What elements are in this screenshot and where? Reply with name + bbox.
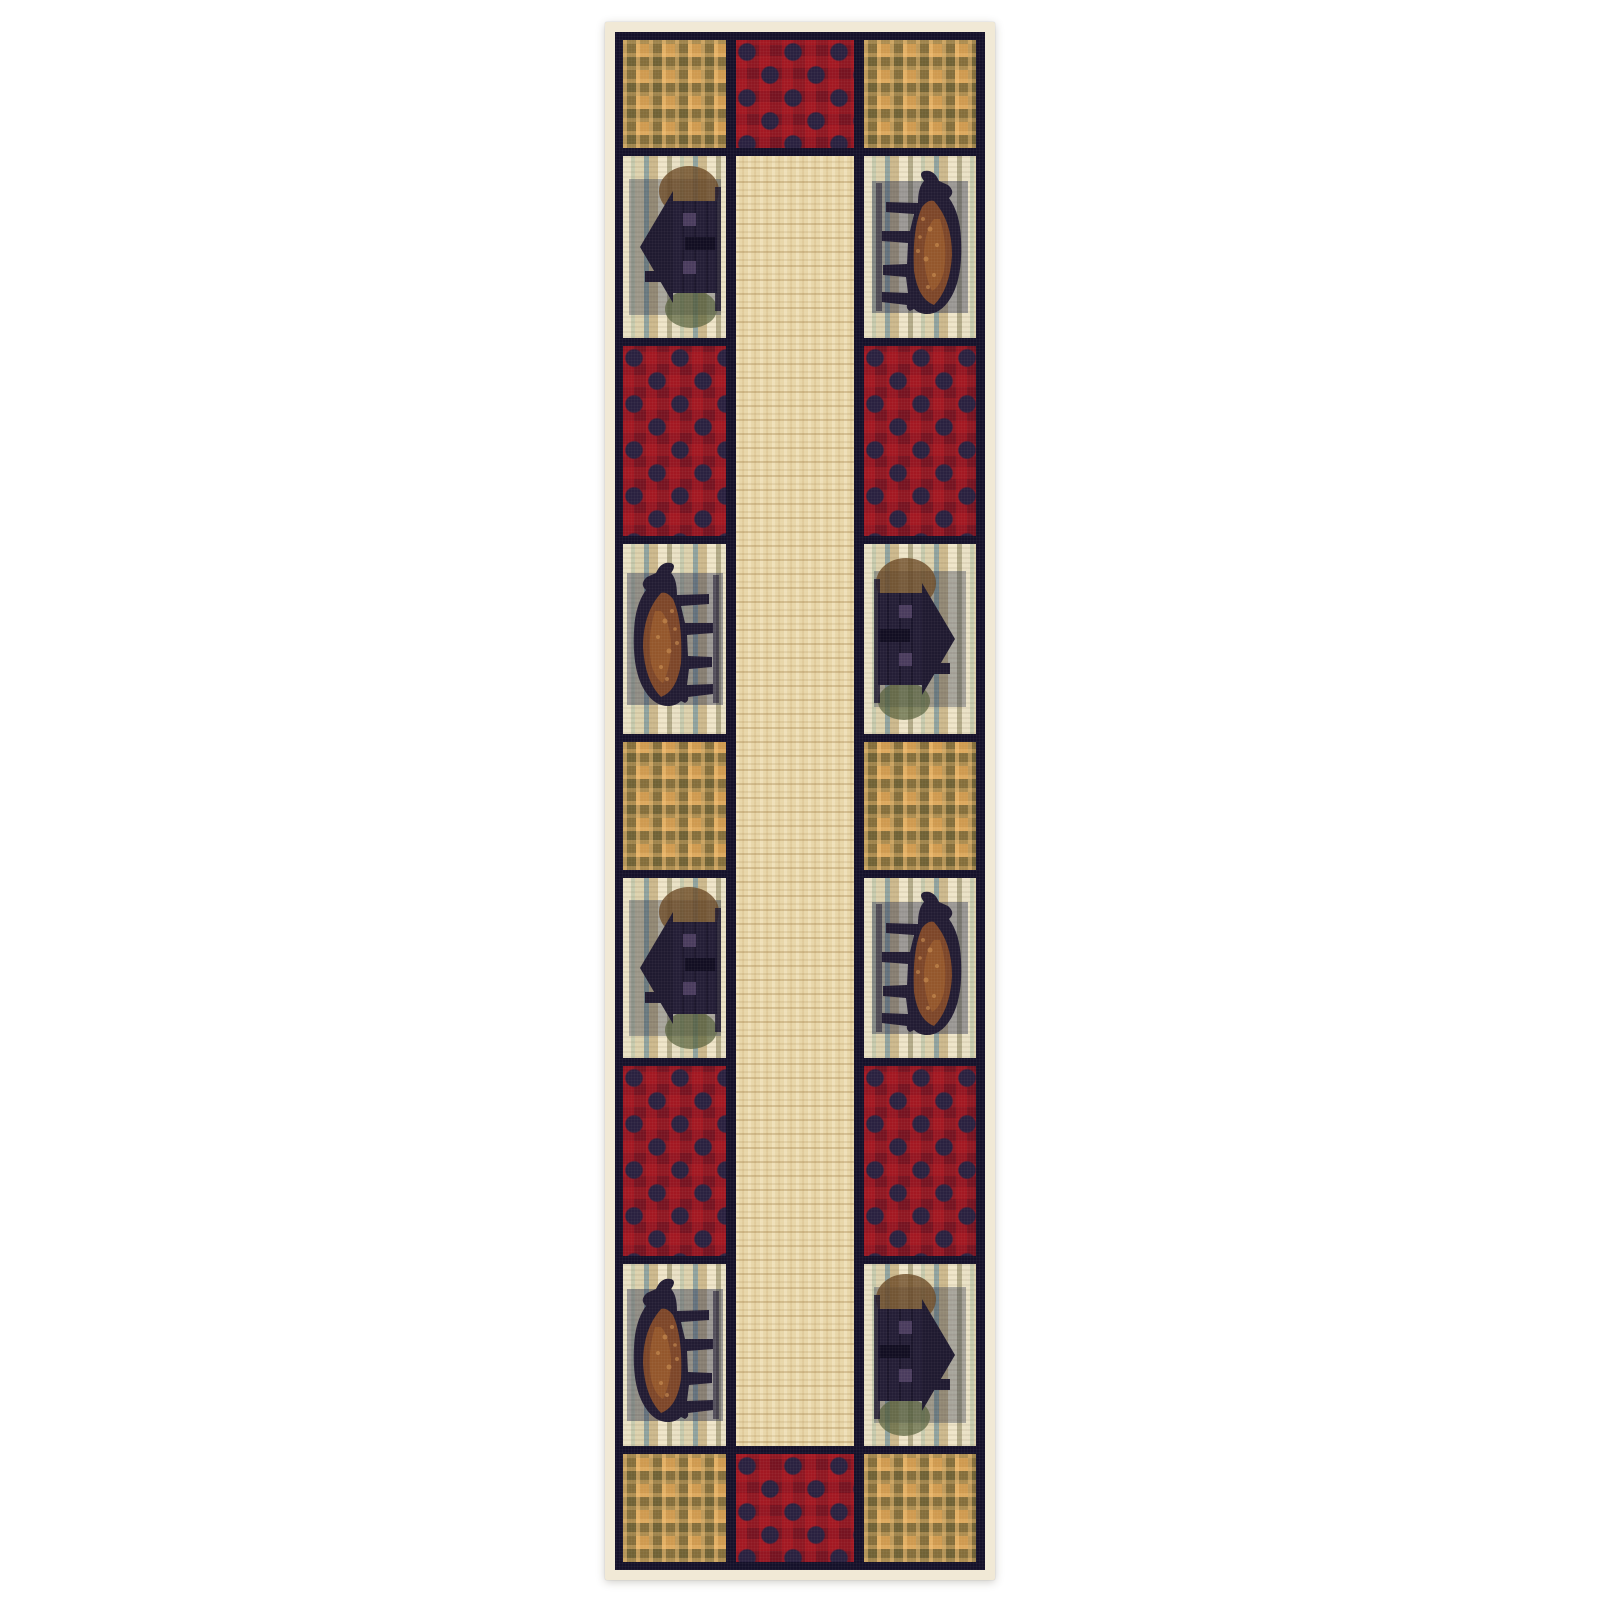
patch-bear-scene [623, 1264, 726, 1446]
patch-plaid [623, 742, 726, 870]
patch-cabin-scene [864, 1264, 976, 1446]
log-cabin-motif [625, 880, 725, 1056]
patch-bear-scene [864, 878, 976, 1058]
patch-cabin-scene [623, 156, 726, 338]
patch-buffalo-check [736, 40, 854, 148]
black-bear-motif [870, 880, 970, 1056]
patch-plaid [864, 742, 976, 870]
log-cabin-motif [870, 551, 970, 727]
patch-buffalo-check [736, 1454, 854, 1562]
patch-cabin-scene [864, 544, 976, 734]
black-bear-motif [625, 1267, 725, 1443]
patch-bear-scene [623, 544, 726, 734]
patch-buffalo-check [864, 346, 976, 536]
patch-bear-scene [864, 156, 976, 338]
product-photo-stage [0, 0, 1600, 1600]
patch-cabin-scene [623, 878, 726, 1058]
patch-buffalo-check [864, 1066, 976, 1256]
patch-plaid [864, 1454, 976, 1562]
black-bear-motif [625, 551, 725, 727]
patch-buffalo-check [623, 1066, 726, 1256]
runner-rug-photo [605, 22, 995, 1580]
patch-plaid [623, 40, 726, 148]
black-bear-motif [870, 159, 970, 335]
patch-plaid [623, 1454, 726, 1562]
rug-grid [615, 32, 985, 1570]
patch-buffalo-check [623, 346, 726, 536]
log-cabin-motif [870, 1267, 970, 1443]
center-beige-stripe [736, 156, 854, 1446]
patch-plaid [864, 40, 976, 148]
log-cabin-motif [625, 159, 725, 335]
